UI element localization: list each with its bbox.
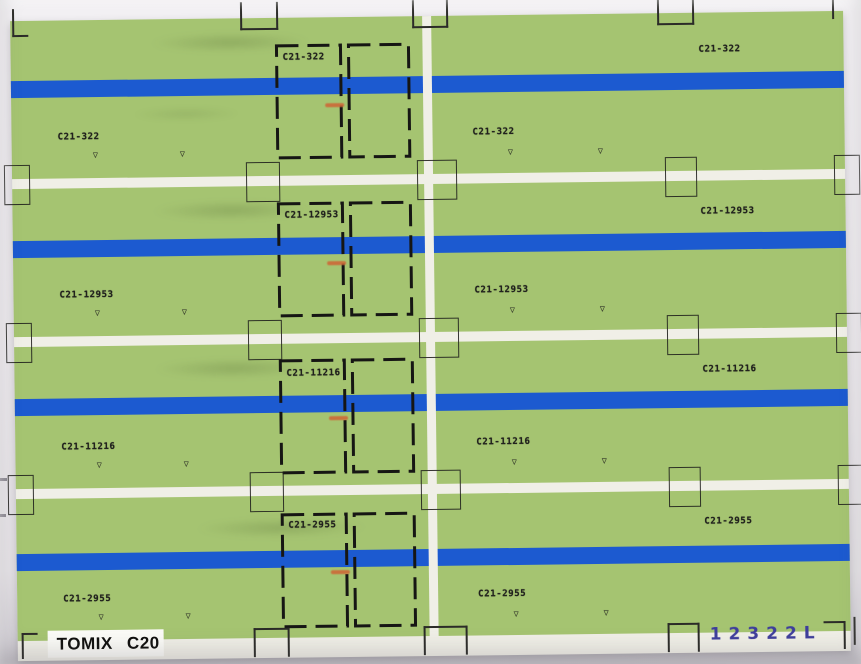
- band-code-label: C21-322: [283, 52, 325, 63]
- band-code-label: C21-322: [57, 132, 99, 143]
- registration-square: [834, 155, 860, 195]
- band-code-label: C21-2955: [478, 589, 526, 600]
- cut-mark-bottom: [668, 623, 700, 652]
- registration-square: [8, 475, 34, 515]
- triangle-print-mark: ▽: [510, 307, 515, 314]
- registration-square: [6, 323, 32, 363]
- triangle-print-mark: ▽: [600, 306, 605, 313]
- band-code-label: C21-11216: [476, 437, 530, 448]
- cut-mark-top-right: [832, 0, 834, 19]
- band-code-label: C21-2955: [288, 520, 336, 531]
- orange-ink-mark: [327, 261, 346, 265]
- registration-square: [667, 315, 699, 355]
- orange-ink-mark: [329, 416, 348, 420]
- triangle-print-mark: ▽: [97, 462, 102, 469]
- registration-square: [421, 470, 461, 510]
- band-code-label: C21-322: [472, 127, 514, 138]
- triangle-print-mark: ▽: [95, 310, 100, 317]
- band-code-label: C21-12953: [284, 210, 338, 221]
- triangle-print-mark: ▽: [186, 613, 191, 620]
- blue-stripe: [17, 544, 850, 571]
- print-smudge: [154, 357, 314, 379]
- band-code-label: C21-322: [698, 44, 740, 55]
- band-row-3: C21-11216 C21-11216 C21-11216 ▽ ▽ ▽ ▽ C2…: [14, 337, 849, 489]
- door-outline-marks: [278, 357, 415, 475]
- print-smudge: [196, 517, 366, 539]
- cut-mark-bottom-right-tick: [853, 617, 855, 645]
- blue-stripe: [13, 231, 846, 258]
- band-row-2: C21-12953 C21-12953 C21-12953 ▽ ▽ ▽ ▽ C2…: [12, 179, 847, 337]
- band-code-label: C21-12953: [474, 285, 528, 296]
- cut-mark-bottom: [424, 626, 468, 656]
- triangle-print-mark: ▽: [93, 152, 98, 159]
- brand-label: TOMIX C20: [48, 629, 164, 657]
- registration-square: [669, 467, 701, 507]
- cut-mark-bottom-right: [824, 621, 846, 649]
- band-code-label: C21-12953: [59, 290, 113, 301]
- registration-square: [419, 318, 459, 358]
- registration-square: [838, 465, 861, 505]
- triangle-print-mark: ▽: [180, 151, 185, 158]
- cut-mark-top: [240, 2, 278, 30]
- cut-mark-top-left: [12, 9, 28, 37]
- band-code-label: C21-11216: [702, 364, 756, 375]
- cut-mark-top: [412, 0, 448, 28]
- triangle-print-mark: ▽: [602, 458, 607, 465]
- center-separator-stripe: [422, 16, 439, 638]
- triangle-print-mark: ▽: [604, 610, 609, 617]
- registration-square: [417, 160, 457, 200]
- triangle-print-mark: ▽: [508, 149, 513, 156]
- registration-square: [246, 162, 280, 202]
- photo-artifact: [0, 478, 7, 481]
- band-row-4: C21-2955 C21-2955 C21-2955 ▽ ▽ ▽ ▽ C21-2…: [16, 489, 851, 641]
- triangle-print-mark: ▽: [512, 459, 517, 466]
- registration-square: [248, 320, 282, 360]
- triangle-print-mark: ▽: [99, 614, 104, 621]
- photo-of-decal-sheet: C21-322 C21-322 C21-322 ▽ ▽ ▽ ▽ C21-322 …: [0, 0, 861, 664]
- band-code-label: C21-11216: [61, 442, 115, 453]
- triangle-print-mark: ▽: [184, 461, 189, 468]
- print-smudge: [131, 106, 241, 121]
- triangle-print-mark: ▽: [514, 611, 519, 618]
- cut-mark-bottom-left: [22, 633, 38, 659]
- door-outline-marks: [276, 200, 413, 318]
- band-code-label: C21-11216: [286, 368, 340, 379]
- orange-ink-mark: [325, 103, 344, 107]
- registration-square: [836, 313, 861, 353]
- door-outline-marks: [280, 511, 417, 629]
- band-code-label: C21-2955: [63, 594, 111, 605]
- band-row-1: C21-322 C21-322 C21-322 ▽ ▽ ▽ ▽ C21-322: [10, 11, 845, 179]
- cut-mark-bottom: [254, 628, 290, 657]
- print-smudge: [152, 199, 312, 221]
- blue-stripe: [11, 71, 844, 98]
- triangle-print-mark: ▽: [598, 148, 603, 155]
- orange-ink-mark: [331, 570, 350, 574]
- band-code-label: C21-12953: [700, 206, 754, 217]
- cut-mark-top: [657, 0, 694, 25]
- registration-square: [250, 472, 284, 512]
- print-smudge: [150, 31, 310, 53]
- serial-number: 12322L: [710, 623, 822, 644]
- photo-artifact: [0, 514, 6, 517]
- registration-square: [4, 165, 30, 205]
- decal-sheet: C21-322 C21-322 C21-322 ▽ ▽ ▽ ▽ C21-322 …: [10, 11, 851, 661]
- triangle-print-mark: ▽: [182, 309, 187, 316]
- door-outline-marks: [274, 42, 411, 160]
- registration-square: [665, 157, 697, 197]
- blue-stripe: [15, 389, 848, 416]
- band-code-label: C21-2955: [704, 516, 752, 527]
